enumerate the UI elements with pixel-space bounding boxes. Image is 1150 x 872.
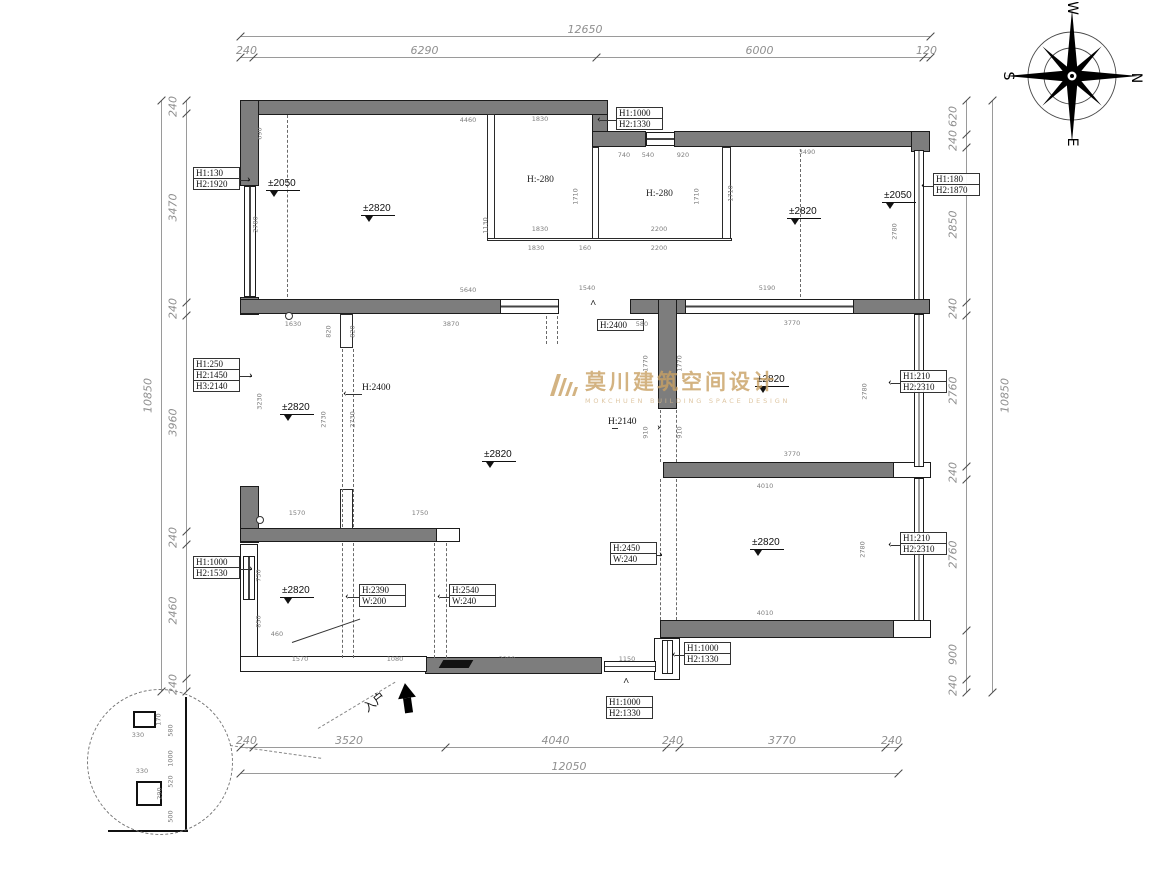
dimension-label: 240 xyxy=(867,734,917,747)
compass-letter-right: N xyxy=(1128,73,1144,83)
leader-line xyxy=(891,383,900,384)
leader-arrow-icon: ‹ xyxy=(672,649,676,659)
leader-arrow-icon: ‹ xyxy=(888,377,892,387)
dimension-label: 2760 xyxy=(947,529,960,579)
plan-canvas: 2406290600012012650240352040402403770240… xyxy=(0,0,1150,872)
interior-dimension: 1830 xyxy=(522,245,550,252)
dimension-line xyxy=(240,36,930,37)
height-callout: H1:250H2:1450H3:2140 xyxy=(193,359,240,392)
window-segment xyxy=(646,132,675,146)
level-value: ±2050 xyxy=(266,178,300,191)
partition-wall xyxy=(487,238,732,241)
level-triangle-icon xyxy=(886,203,894,209)
watermark-title: 莫川建筑空间设计 xyxy=(585,366,790,396)
watermark-row: 莫川建筑空间设计 MOKCHUEN BUILDING SPACE DESIGN xyxy=(549,366,790,405)
interior-dimension: 2780 xyxy=(892,218,899,246)
interior-dimension: 1540 xyxy=(573,285,601,292)
leader-line xyxy=(612,428,618,429)
leader-line xyxy=(346,394,362,395)
wall-segment xyxy=(853,299,930,314)
window-segment xyxy=(685,299,854,314)
wall-segment xyxy=(240,100,608,115)
level-triangle-icon xyxy=(284,598,292,604)
door-leaf xyxy=(439,660,474,668)
interior-dimension: 4460 xyxy=(454,117,482,124)
watermark-text: 莫川建筑空间设计 MOKCHUEN BUILDING SPACE DESIGN xyxy=(585,366,790,405)
callout-line: W:200 xyxy=(359,595,406,607)
interior-dimension: 920 xyxy=(669,152,697,159)
dimension-label: 3470 xyxy=(167,182,180,232)
callout-line: H2:1330 xyxy=(616,118,663,130)
height-callout: H1:210H2:2310 xyxy=(900,371,947,393)
watermark: 莫川建筑空间设计 MOKCHUEN BUILDING SPACE DESIGN xyxy=(549,366,790,405)
level-value: ±2820 xyxy=(787,206,821,219)
interior-dimension: 1710 xyxy=(728,180,735,208)
level-triangle-icon xyxy=(270,191,278,197)
interior-dimension: 4010 xyxy=(751,483,779,490)
dimension-label: 12050 xyxy=(544,760,594,773)
height-callout: H1:180H2:1870 xyxy=(933,174,980,196)
window-segment xyxy=(244,186,256,297)
floor-height-label: H:-280 xyxy=(646,189,673,199)
detail-dimension: 330 xyxy=(124,732,152,739)
window-segment xyxy=(500,299,559,314)
level-triangle-icon xyxy=(284,415,292,421)
interior-dimension: 730 xyxy=(256,562,263,590)
floorplan-page: { "watermark": {"cn": "莫川建筑空间设计", "en": … xyxy=(0,0,1150,872)
dimension-line xyxy=(992,100,993,692)
dimension-label: 240 xyxy=(222,44,272,57)
leader-line xyxy=(440,597,449,598)
dimension-label: 240 xyxy=(648,734,698,747)
wall-segment xyxy=(240,528,438,542)
wall-segment xyxy=(674,131,930,147)
dimension-label: 240 xyxy=(167,659,180,709)
interior-dimension: 1630 xyxy=(279,321,307,328)
dimension-label: 240 xyxy=(222,734,272,747)
interior-dimension: 850 xyxy=(256,608,263,636)
height-callout: H1:1000H2:1330 xyxy=(606,697,653,719)
level-value: ±2820 xyxy=(280,585,314,598)
dimension-label: 240 xyxy=(947,660,960,710)
interior-dimension: 2730 xyxy=(321,406,328,434)
interior-dimension: 5190 xyxy=(753,285,781,292)
leader-line xyxy=(924,186,933,187)
callout-line: W:240 xyxy=(610,553,657,565)
opening-dashed-line xyxy=(287,115,288,297)
opening-dashed-line xyxy=(546,316,547,344)
compass-letter-left: S xyxy=(1000,72,1016,81)
leader-arrow-icon: › xyxy=(247,174,251,184)
level-marker: ±2820 xyxy=(750,537,784,556)
interior-dimension: 160 xyxy=(571,245,599,252)
detail-dimension: 290 xyxy=(157,780,164,808)
compass-letter-bottom: E xyxy=(1064,138,1080,147)
interior-dimension: 3770 xyxy=(778,320,806,327)
height-callout: H1:1000H2:1330 xyxy=(684,643,731,665)
level-marker: ±2050 xyxy=(266,178,300,197)
callout-line: H2:1920 xyxy=(193,178,240,190)
leader-line xyxy=(348,597,359,598)
dimension-label: 240 xyxy=(167,81,180,131)
interior-dimension: 910 xyxy=(677,419,684,447)
height-label: H:2140 xyxy=(608,417,637,427)
interior-dimension: 2200 xyxy=(645,226,673,233)
opening-dashed-line xyxy=(353,349,354,527)
level-triangle-icon xyxy=(486,462,494,468)
level-value: ±2820 xyxy=(280,402,314,415)
interior-dimension: 3870 xyxy=(437,321,465,328)
dimension-label: 240 xyxy=(947,283,960,333)
interior-dimension: 1570 xyxy=(286,656,314,663)
opening-dashed-line xyxy=(342,543,343,658)
compass-rose: W N E S xyxy=(1000,2,1144,148)
dimension-label: 4040 xyxy=(531,734,581,747)
opening-dashed-line xyxy=(353,543,354,658)
dimension-label: 3960 xyxy=(167,398,180,448)
height-callout: H1:130H2:1920 xyxy=(193,168,240,190)
dimension-line xyxy=(186,100,187,691)
detail-leader-line xyxy=(318,682,396,729)
interior-dimension: 3290 xyxy=(493,656,521,663)
interior-dimension: 910 xyxy=(643,419,650,447)
interior-dimension: 690 xyxy=(257,120,264,148)
interior-dimension: 4010 xyxy=(751,610,779,617)
window-segment xyxy=(914,150,924,300)
leader-arrow-icon: ^ xyxy=(590,299,596,309)
wall-segment xyxy=(592,131,646,147)
callout-line: H2:1330 xyxy=(684,653,731,665)
dimension-label: 2460 xyxy=(167,586,180,636)
height-callout: H:2450W:240 xyxy=(610,543,657,565)
height-callout: H:2540W:240 xyxy=(449,585,496,607)
dimension-label: 3770 xyxy=(757,734,807,747)
leader-arrow-icon: › xyxy=(657,422,661,432)
level-value: ±2820 xyxy=(361,203,395,216)
dimension-label: 10850 xyxy=(142,370,155,420)
opening-dashed-line xyxy=(557,316,558,344)
interior-dimension: 3230 xyxy=(257,388,264,416)
callout-line: H2:1330 xyxy=(606,707,653,719)
symbol-circle xyxy=(285,312,293,320)
level-marker: ±2820 xyxy=(280,402,314,421)
callout-line: H2:2310 xyxy=(900,543,947,555)
leader-arrow-icon: › xyxy=(249,370,253,380)
interior-dimension: 1830 xyxy=(526,116,554,123)
dimension-label: 2760 xyxy=(947,365,960,415)
wall-segment xyxy=(240,299,503,314)
interior-dimension: 2780 xyxy=(253,211,260,239)
dimension-label: 2850 xyxy=(947,199,960,249)
leader-line xyxy=(600,120,616,121)
symbol-circle xyxy=(256,516,264,524)
opening-dashed-line xyxy=(434,543,435,658)
callout-line: H3:2140 xyxy=(193,380,240,392)
leader-arrow-icon: ‹ xyxy=(888,539,892,549)
callout-line: W:240 xyxy=(449,595,496,607)
interior-dimension: 460 xyxy=(263,631,291,638)
interior-dimension: 1750 xyxy=(406,510,434,517)
level-marker: ±2820 xyxy=(361,203,395,222)
interior-dimension: 1830 xyxy=(526,226,554,233)
dimension-line xyxy=(240,747,898,748)
level-value: ±2820 xyxy=(482,449,516,462)
watermark-logo-icon xyxy=(549,370,579,402)
interior-dimension: 1080 xyxy=(381,656,409,663)
wall-segment xyxy=(663,462,894,478)
detail-dimension: 500 xyxy=(168,803,175,831)
dimension-label: 12650 xyxy=(560,23,610,36)
height-label: H:2400 xyxy=(362,383,391,393)
level-triangle-icon xyxy=(365,216,373,222)
interior-dimension: 1150 xyxy=(613,656,641,663)
dimension-label: 240 xyxy=(167,512,180,562)
dimension-line xyxy=(240,773,898,774)
opening-dashed-line xyxy=(342,349,343,527)
dimension-label: 240 xyxy=(947,447,960,497)
partition-wall xyxy=(592,147,599,240)
interior-dimension: 580 xyxy=(628,321,656,328)
detail-dimension: 580 xyxy=(168,717,175,745)
level-triangle-icon xyxy=(754,550,762,556)
level-triangle-icon xyxy=(791,219,799,225)
dimension-line xyxy=(161,100,162,691)
interior-dimension: 1710 xyxy=(694,183,701,211)
wall-segment xyxy=(911,131,930,152)
leader-arrow-icon: ^ xyxy=(623,677,629,687)
level-marker: ±2050 xyxy=(882,190,916,209)
height-callout: H1:1000H2:1530 xyxy=(193,557,240,579)
interior-dimension: 3770 xyxy=(778,451,806,458)
opening-dashed-line xyxy=(660,410,661,462)
interior-dimension: 2780 xyxy=(860,536,867,564)
leader-arrow-icon: ‹ xyxy=(921,180,925,190)
callout-line: H2:1870 xyxy=(933,184,980,196)
dimension-line xyxy=(240,57,930,58)
dimension-label: 240 xyxy=(167,283,180,333)
interior-dimension: 820 xyxy=(326,318,333,346)
interior-dimension: 540 xyxy=(634,152,662,159)
height-callout: H1:210H2:2310 xyxy=(900,533,947,555)
interior-dimension: 820 xyxy=(350,318,357,346)
dimension-label: 10850 xyxy=(999,371,1012,421)
level-marker: ±2820 xyxy=(280,585,314,604)
leader-line xyxy=(891,545,900,546)
detail-dimension: 520 xyxy=(168,768,175,796)
leader-line xyxy=(675,655,684,656)
interior-dimension: 1570 xyxy=(283,510,311,517)
wall-segment xyxy=(893,620,931,638)
wall-segment xyxy=(660,620,894,638)
dimension-label: 120 xyxy=(902,44,952,57)
floor-height-label: H:-280 xyxy=(527,175,554,185)
level-value: ±2050 xyxy=(882,190,916,203)
dimension-label: 240 xyxy=(947,115,960,165)
height-callout: H:2390W:200 xyxy=(359,585,406,607)
watermark-subtitle: MOKCHUEN BUILDING SPACE DESIGN xyxy=(585,397,790,405)
interior-dimension: 2200 xyxy=(645,245,673,252)
wall-chamfer-line xyxy=(292,619,360,643)
leader-arrow-icon: ‹ xyxy=(343,388,347,398)
interior-dimension: 5640 xyxy=(454,287,482,294)
compass-letter-top: W xyxy=(1064,2,1080,15)
level-marker: ±2820 xyxy=(482,449,516,468)
interior-dimension: 1710 xyxy=(573,183,580,211)
leader-arrow-icon: › xyxy=(249,563,253,573)
interior-dimension: 1130 xyxy=(483,212,490,240)
interior-dimension: 2730 xyxy=(350,406,357,434)
opening-dashed-line xyxy=(676,479,677,620)
dimension-label: 3520 xyxy=(324,734,374,747)
dimension-label: 6290 xyxy=(400,44,450,57)
level-value: ±2820 xyxy=(750,537,784,550)
callout-line: H2:1530 xyxy=(193,567,240,579)
opening-dashed-line xyxy=(446,543,447,658)
leader-arrow-icon: ‹ xyxy=(437,591,441,601)
wall-segment xyxy=(893,462,931,478)
interior-dimension: 2780 xyxy=(862,378,869,406)
dimension-label: 6000 xyxy=(735,44,785,57)
detail-dimension: 330 xyxy=(128,768,156,775)
wall-segment xyxy=(436,528,460,542)
interior-dimension: 3490 xyxy=(793,149,821,156)
detail-dimension: 170 xyxy=(156,706,163,734)
callout-line: H2:2310 xyxy=(900,381,947,393)
leader-arrow-icon: ‹ xyxy=(345,591,349,601)
leader-arrow-icon: › xyxy=(659,549,663,559)
leader-arrow-icon: ‹ xyxy=(597,114,601,124)
height-callout: H1:1000H2:1330 xyxy=(616,108,663,130)
level-marker: ±2820 xyxy=(787,206,821,225)
